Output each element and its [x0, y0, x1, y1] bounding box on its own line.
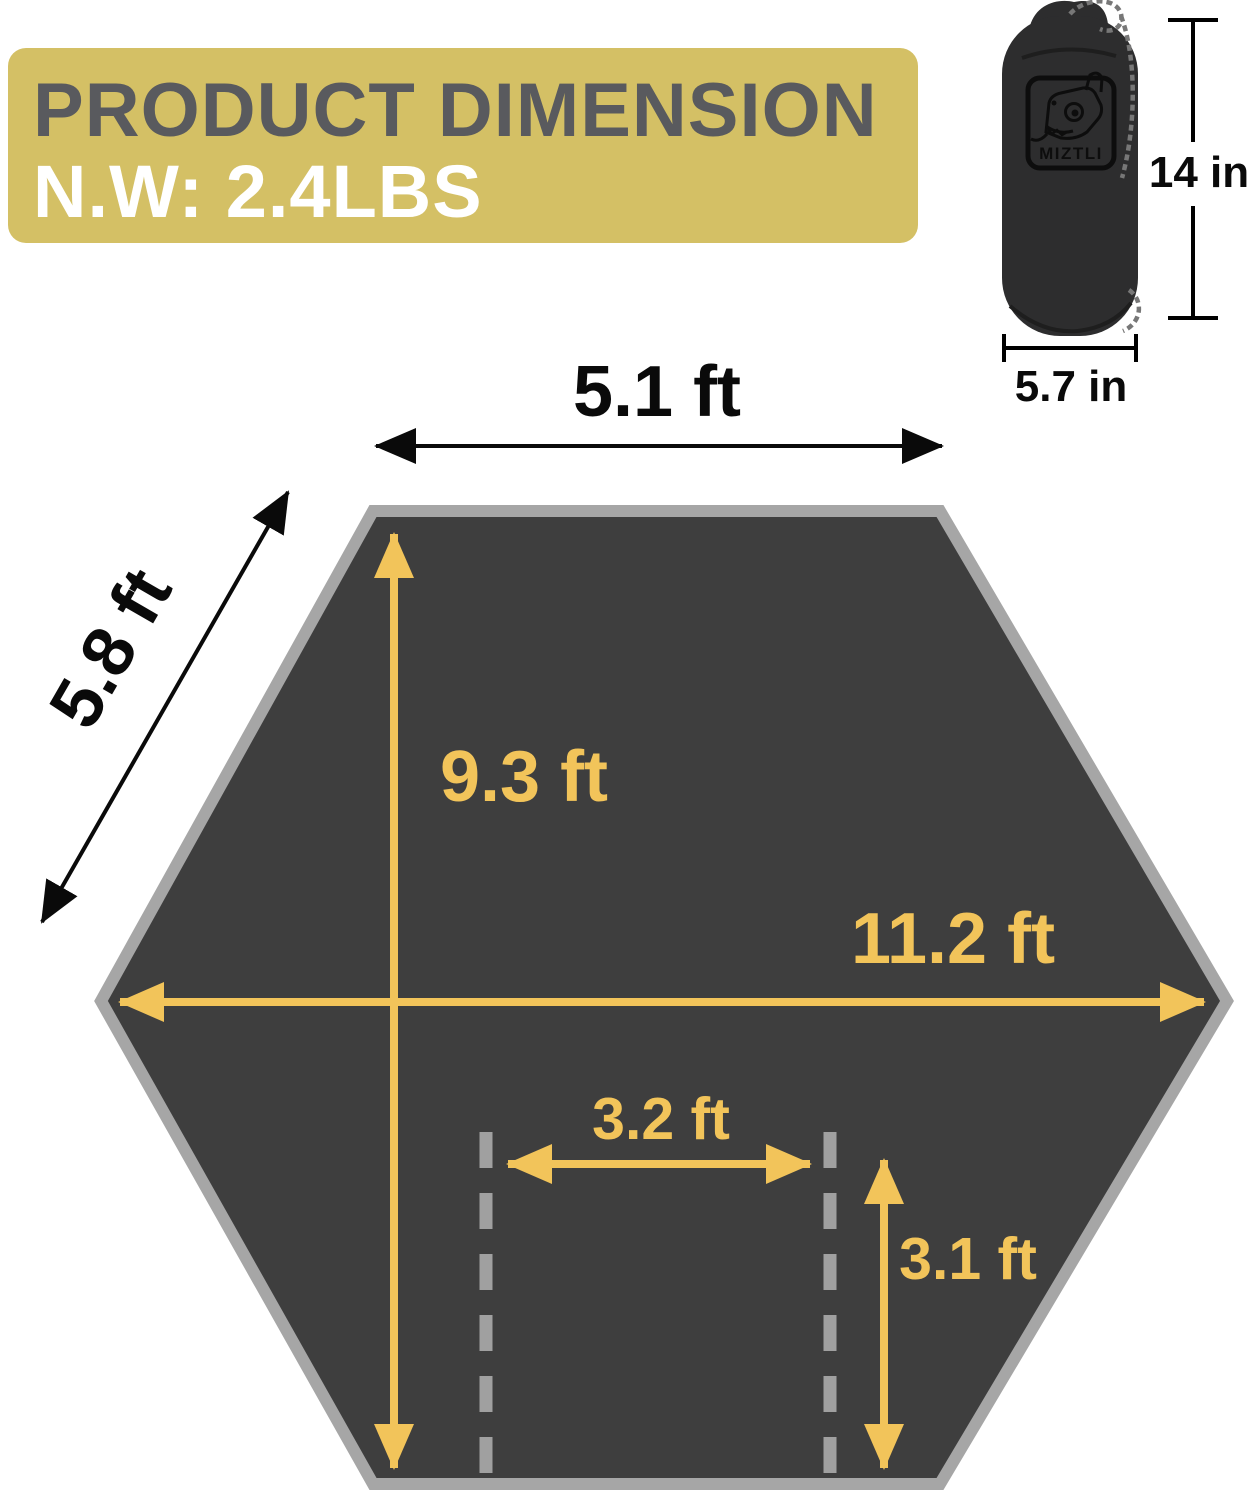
product-dimension-infographic: PRODUCT DIMENSION N.W: 2.4LBS: [0, 0, 1251, 1500]
brand-name: MIZTLI: [1039, 144, 1103, 163]
sack-width-value: 5.7 in: [1015, 362, 1128, 411]
max-width-value: 11.2 ft: [851, 899, 1055, 979]
door-width-value: 3.2 ft: [592, 1086, 730, 1152]
top-edge-value: 5.1 ft: [573, 352, 741, 432]
header-banner: PRODUCT DIMENSION N.W: 2.4LBS: [8, 48, 918, 243]
side-edge-value: 5.8 ft: [34, 556, 187, 742]
stuff-sack: MIZTLI: [1002, 1, 1139, 336]
tarp-hexagon: [101, 511, 1227, 1484]
center-height-value: 9.3 ft: [440, 737, 608, 817]
sack-height-value: 14 in: [1149, 148, 1249, 197]
sack-body: [1002, 16, 1138, 336]
net-weight-label: N.W: 2.4LBS: [33, 150, 483, 233]
door-height-value: 3.1 ft: [899, 1226, 1037, 1292]
page-title: PRODUCT DIMENSION: [33, 68, 878, 153]
